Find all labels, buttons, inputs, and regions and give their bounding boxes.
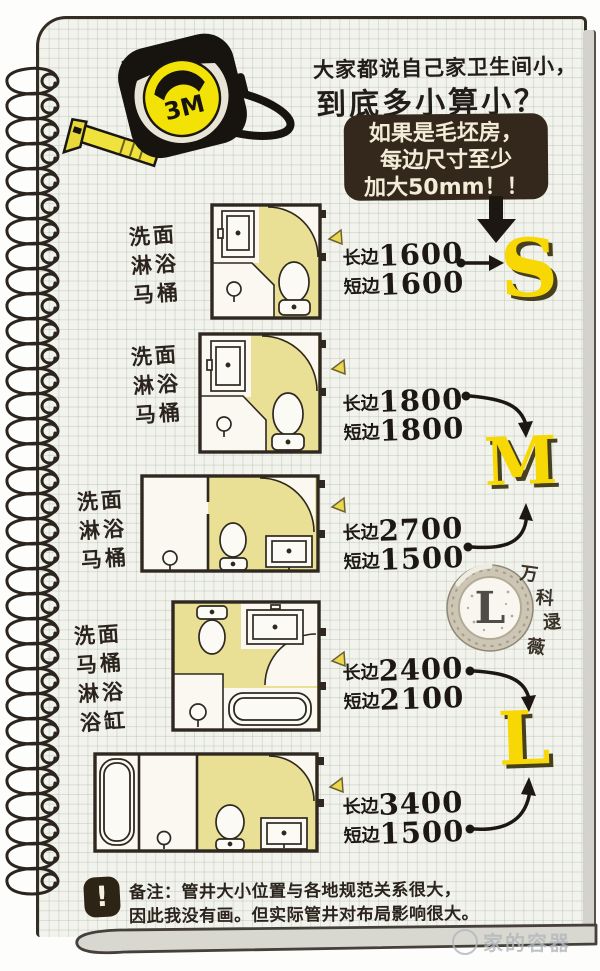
page-edge-strip [583,30,596,930]
floor-plan-4 [171,600,327,733]
plan1-dimensions: 长边1600 短边1600 [342,236,465,298]
plan2-dimensions: 长边1800 短边1800 [342,382,465,444]
tape-measure-icon: 3M [62,30,302,200]
badge-letter: L [475,583,506,634]
watermark: 家的容器 [452,927,571,956]
sink [266,536,312,570]
bathtub [100,759,134,845]
badge-author-char: 逯 [542,607,562,634]
watermark-logo-icon [452,929,478,955]
floor-plan-3 [140,474,327,578]
bubble-line: 加大50mm！！ [344,173,548,202]
bubble-line: 每边尺寸至少 [344,146,548,175]
sink [247,605,303,644]
sink [218,211,254,257]
bubble-line: 如果是毛坯房， [344,119,548,148]
toilet [272,393,304,450]
plan1-fixtures-label: 洗面淋浴马桶 [128,220,182,310]
sink [207,341,245,391]
toilet [279,262,310,315]
size-letter-m: M [483,427,558,496]
badge-author-char: 薇 [526,632,547,660]
sink [261,818,307,849]
infographic-canvas: 3M 大家都说自己家卫生间小， 到底多小算小？ 如果是毛坯房， 每边尺寸至少 加… [0,0,600,971]
plan5-dimensions: 长边3400 短边1500 [342,785,465,847]
plan2-fixtures-label: 洗面淋浴马桶 [130,340,184,430]
plan3-fixtures-label: 洗面淋浴马桶 [76,485,130,575]
toilet [220,523,247,570]
size-letter-l: L [497,701,552,777]
plan4-fixtures-label: 洗面马桶 淋浴浴缸 [73,619,129,738]
plan4-dimensions: 长边2400 短边2100 [342,651,465,713]
exclamation-icon: ! [83,876,121,918]
badge-author-char: 科 [535,583,555,610]
floor-plan-1 [210,203,328,321]
spiral-binding-icon [2,66,68,916]
floor-plan-5 [93,752,326,858]
floor-plan-2 [198,332,328,458]
toilet [197,606,227,654]
bathtub [229,693,311,725]
note-bubble: 如果是毛坯房， 每边尺寸至少 加大50mm！！ [344,113,549,201]
size-letter-s: S [499,227,560,309]
toilet [216,805,244,850]
